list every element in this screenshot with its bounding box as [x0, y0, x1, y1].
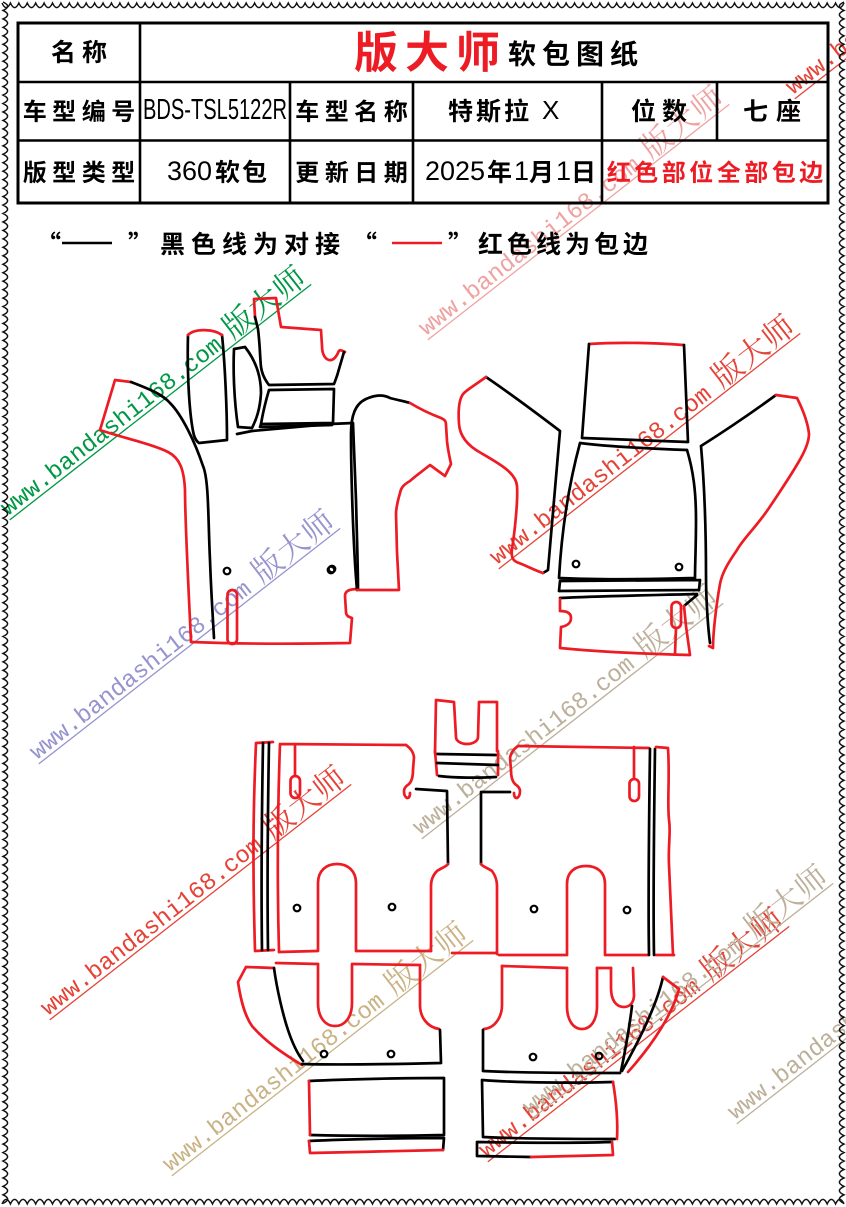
svg-text:2025: 2025 — [425, 156, 485, 186]
svg-text:360: 360 — [167, 156, 212, 186]
svg-text:BDS-TSL5122R: BDS-TSL5122R — [143, 94, 287, 126]
svg-text:X: X — [542, 95, 559, 125]
svg-text:1: 1 — [556, 156, 571, 186]
svg-text:1: 1 — [514, 156, 529, 186]
